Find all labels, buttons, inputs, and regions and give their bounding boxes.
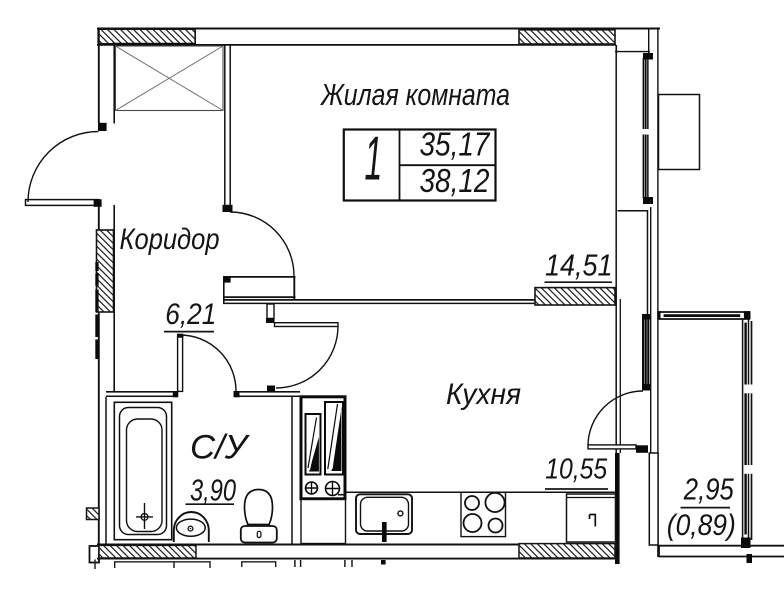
svg-text:14,51: 14,51: [545, 248, 613, 283]
svg-text:(0,89): (0,89): [667, 509, 736, 542]
svg-text:38,12: 38,12: [420, 162, 490, 199]
svg-text:6,21: 6,21: [165, 298, 216, 331]
svg-text:2,95: 2,95: [683, 472, 734, 507]
svg-text:Кухня: Кухня: [446, 378, 521, 411]
svg-text:Жилая комната: Жилая комната: [319, 78, 510, 112]
svg-text:3,90: 3,90: [190, 473, 236, 508]
svg-text:Коридор: Коридор: [120, 223, 220, 256]
svg-text:35,17: 35,17: [420, 126, 491, 163]
svg-text:1: 1: [365, 124, 383, 193]
svg-text:10,55: 10,55: [545, 454, 607, 486]
svg-text:С/У: С/У: [190, 429, 250, 467]
